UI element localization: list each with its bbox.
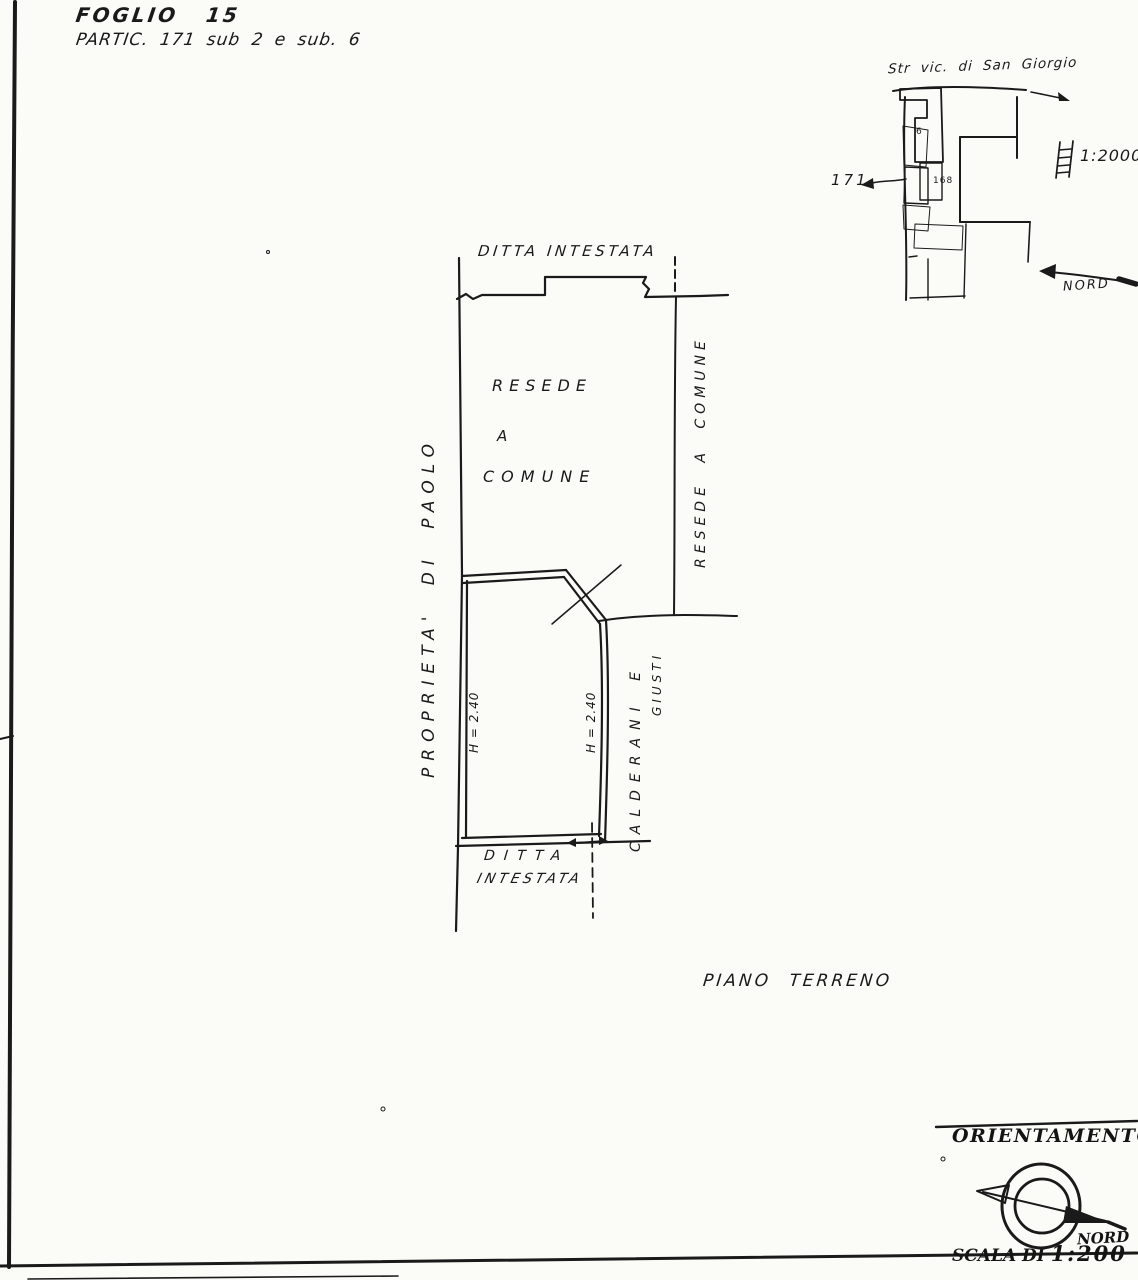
- neighbor-right-label-2: GIUSTI: [651, 652, 664, 716]
- street-arrow-icon: [1058, 92, 1070, 101]
- dashed-boundary-line: [592, 823, 593, 918]
- ladder-scale-icon: [1056, 141, 1073, 178]
- sub-parcel-label: 6: [916, 128, 922, 138]
- sheet-number-label: FOGLIO 15: [74, 4, 241, 26]
- map-north-arrow-icon: [1039, 264, 1056, 279]
- right-boundary-line: [674, 297, 676, 615]
- left-boundary-line: [456, 258, 462, 931]
- hatched-parcel-bottom: [914, 224, 963, 250]
- top-boundary-line: [457, 277, 728, 299]
- bottom-neighbor-label-1: DITTA: [483, 849, 570, 864]
- scale-label: SCALA DI: [952, 1246, 1045, 1266]
- courtyard-label-2: A: [497, 428, 507, 445]
- ceiling-height-right-label: H = 2.40: [585, 692, 598, 753]
- floor-title-label: PIANO TERRENO: [702, 972, 893, 991]
- scale-line: SCALA DI 1:200: [952, 1243, 1127, 1266]
- courtyard-label-1: RESEDE: [492, 377, 592, 395]
- parcel-number-label: 171: [831, 172, 869, 189]
- orientation-title: ORIENTAMENTO: [952, 1127, 1138, 1147]
- scale-value: 1:200: [1051, 1241, 1127, 1266]
- page-border: [0, 2, 1137, 1279]
- parcel-reference-label: PARTIC. 171 sub 2 e sub. 6: [75, 31, 362, 50]
- scanned-cadastral-sheet: FOGLIO 15 PARTIC. 171 sub 2 e sub. 6 Str…: [0, 0, 1138, 1280]
- right-boundary-label: RESEDE A COMUNE: [694, 336, 709, 568]
- opening-cross-line: [552, 565, 621, 624]
- top-neighbor-label: DITTA INTESTATA: [477, 243, 658, 260]
- ceiling-height-left-label: H = 2.40: [468, 692, 481, 753]
- bottom-neighbor-label-2: INTESTATA: [475, 872, 584, 887]
- left-boundary-owner-label: PROPRIETA' DI PAOLO: [420, 437, 439, 778]
- locator-map-sketch: [861, 87, 1136, 300]
- adjacent-parcel-label: 168: [933, 177, 953, 187]
- courtyard-label-3: COMUNE: [483, 468, 596, 486]
- locator-scale-label: 1:2000: [1080, 147, 1138, 165]
- neighbor-right-label-1: CALDERANI E: [629, 664, 644, 852]
- plan-linework: [0, 0, 1138, 1280]
- hatched-parcel-lower: [903, 205, 930, 231]
